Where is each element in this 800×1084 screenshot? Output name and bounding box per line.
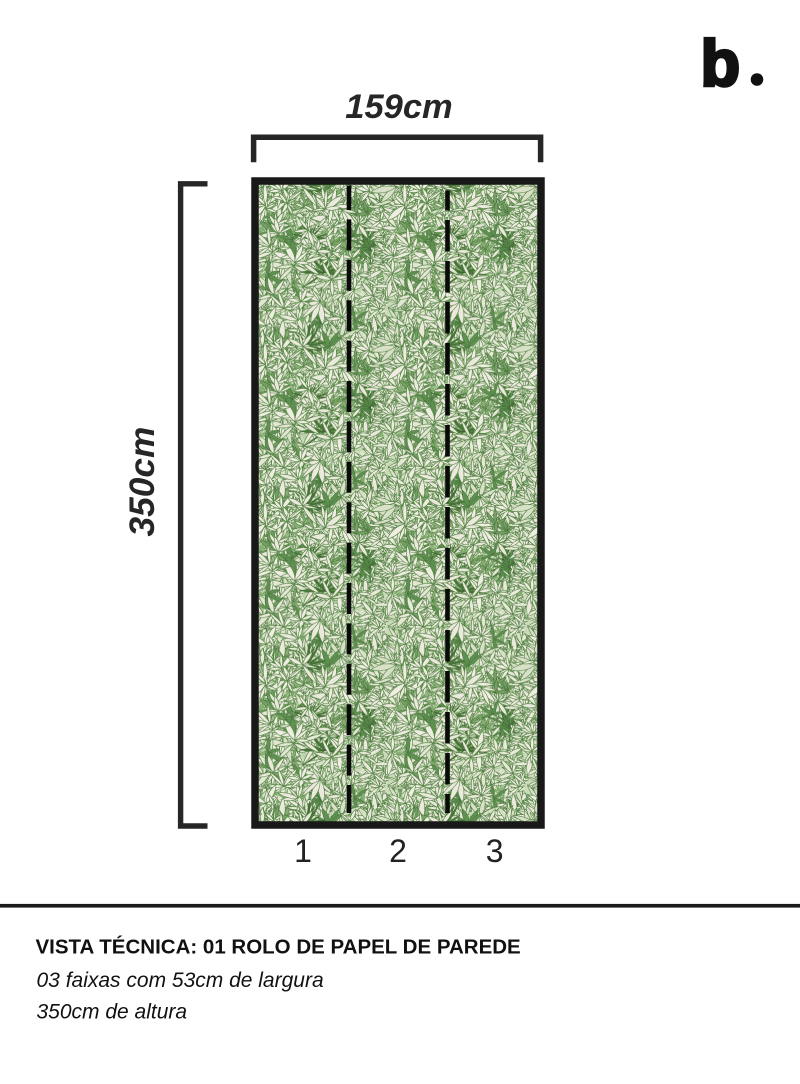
svg-text:1: 1: [294, 833, 312, 869]
svg-text:VISTA TÉCNICA: 01 ROLO DE PAPE: VISTA TÉCNICA: 01 ROLO DE PAPEL DE PARED…: [36, 936, 521, 959]
svg-text:159cm: 159cm: [345, 88, 452, 126]
svg-text:350cm de altura: 350cm de altura: [37, 1001, 188, 1024]
svg-text:3: 3: [486, 833, 504, 869]
svg-text:350cm: 350cm: [123, 427, 162, 537]
svg-text:03 faixas com 53cm de largura: 03 faixas com 53cm de largura: [37, 969, 324, 992]
svg-text:2: 2: [389, 833, 407, 869]
svg-text:b: b: [701, 27, 740, 99]
